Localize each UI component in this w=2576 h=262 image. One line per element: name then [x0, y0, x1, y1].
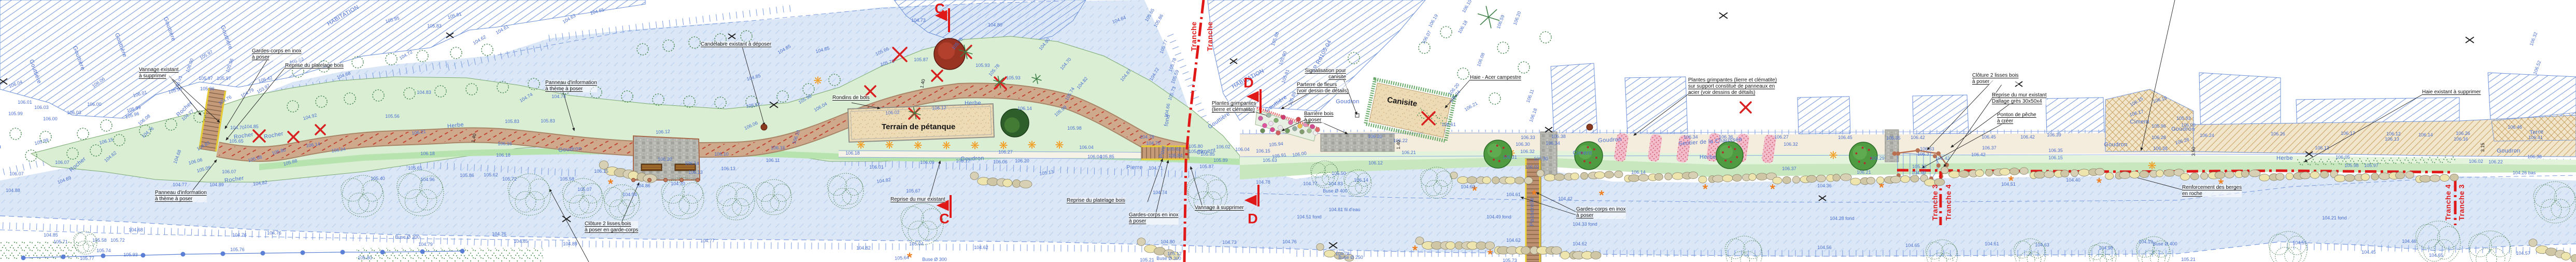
rock — [1344, 254, 1354, 261]
flower — [1274, 118, 1279, 123]
rock — [1170, 252, 1179, 260]
rock — [1910, 175, 1919, 183]
rock — [1773, 177, 1782, 184]
rock — [1551, 246, 1562, 254]
rock — [2034, 171, 2045, 178]
rock — [1817, 175, 1826, 182]
flower — [1315, 128, 1320, 132]
rock — [1941, 167, 1948, 174]
site-plan: 106.04106.01106.03106.00106.03106.00106.… — [0, 0, 2576, 262]
rock — [2061, 170, 2069, 177]
bench — [675, 164, 696, 171]
parcel-hatch — [1913, 95, 1969, 134]
round-tree — [1488, 144, 1502, 158]
rock — [2078, 169, 2090, 176]
rock — [1416, 237, 1424, 245]
survey-dot — [21, 256, 26, 260]
rock — [2440, 174, 2449, 182]
shrub-tree — [1419, 42, 1430, 53]
petanque-court — [848, 104, 994, 142]
flower — [1310, 125, 1315, 129]
starfish-symbol — [1879, 184, 1881, 185]
rock — [1833, 174, 1840, 182]
round-tree-berry — [1505, 155, 1507, 157]
star-plant — [1480, 17, 1489, 25]
rock — [1877, 177, 1884, 184]
round-tree-berry — [1493, 159, 1495, 161]
round-tree-berry — [1724, 159, 1726, 161]
starfish-symbol — [2008, 177, 2011, 178]
light-symbol — [2151, 164, 2153, 167]
rock — [2430, 175, 2440, 182]
rock — [2379, 173, 2390, 180]
rock — [1317, 243, 1324, 251]
flower — [1267, 113, 1271, 118]
round-tree-berry — [1728, 146, 1730, 148]
rock — [2334, 175, 2346, 182]
shrub-tree — [10, 128, 21, 140]
rock — [970, 172, 979, 180]
round-tree-berry — [1734, 148, 1736, 150]
rock — [2156, 170, 2163, 177]
light-symbol — [1832, 154, 1834, 156]
flower — [1281, 115, 1286, 120]
light-symbol — [1002, 144, 1004, 146]
rock — [1137, 238, 1145, 246]
round-tree — [1578, 145, 1592, 159]
plan-drawing — [0, 0, 2576, 262]
light-symbol — [1058, 144, 1060, 146]
rock — [2020, 168, 2028, 175]
light-symbol — [860, 144, 862, 146]
rock — [1446, 242, 1455, 250]
walkway — [839, 154, 1188, 156]
flower — [1276, 131, 1281, 135]
candelabra-dot — [761, 124, 767, 130]
light-symbol — [1031, 144, 1033, 146]
rock — [1986, 169, 1993, 176]
rock — [2119, 172, 2131, 179]
survey-dot — [261, 251, 265, 256]
parcel-hatch — [1625, 77, 1688, 134]
terrace-post — [632, 178, 635, 182]
flower — [1306, 120, 1311, 125]
rock — [1020, 181, 1032, 188]
round-tree-berry — [1587, 146, 1589, 148]
rock — [1524, 177, 1533, 184]
green-strip — [357, 248, 543, 261]
shrub-tree — [1540, 32, 1551, 43]
round-tree-berry — [1498, 160, 1501, 162]
rock — [1712, 175, 1724, 183]
round-tree-berry — [1496, 145, 1498, 147]
rock — [1866, 177, 1875, 185]
rock — [1580, 172, 1588, 180]
rock — [1934, 178, 1945, 186]
star-plant — [1486, 6, 1489, 17]
rock — [2320, 171, 2329, 178]
terrace-post — [696, 178, 700, 182]
terrace-post — [664, 178, 668, 182]
survey-dot — [141, 253, 146, 258]
rock — [1806, 175, 1817, 183]
pont-bridge — [1141, 146, 1189, 160]
rock — [2361, 174, 2369, 181]
rock — [1505, 177, 1516, 184]
round-tree-berry — [1868, 149, 1870, 151]
rock — [1570, 173, 1579, 180]
round-tree-berry — [1736, 156, 1738, 158]
shrub-tree — [1440, 26, 1452, 38]
starfish-symbol — [907, 254, 910, 255]
rock — [1324, 250, 1336, 257]
rock — [1924, 179, 1936, 186]
flower — [1289, 120, 1293, 125]
rock — [1959, 171, 1969, 178]
rock — [2129, 171, 2140, 178]
rock — [1334, 252, 1344, 259]
rock — [2000, 168, 2010, 175]
rock — [2561, 252, 2570, 260]
parcel-hatch — [2046, 98, 2104, 134]
shrub-tree — [77, 128, 89, 140]
rock — [1492, 177, 1499, 184]
rock — [1654, 173, 1663, 181]
rock — [2420, 175, 2431, 183]
round-tree-berry — [1870, 157, 1872, 159]
shrub-tree — [1497, 42, 1509, 53]
dark-bush — [1004, 117, 1020, 133]
terrace-post — [648, 178, 652, 182]
ciment-crosshatch — [2105, 89, 2193, 151]
terrace-post — [680, 178, 684, 182]
rock — [2225, 171, 2234, 178]
star-plant — [1489, 17, 1499, 21]
rock — [1003, 179, 1012, 187]
rock — [2276, 173, 2284, 181]
survey-dot — [101, 254, 106, 258]
rock — [2044, 171, 2055, 178]
flower — [1300, 130, 1305, 134]
rock — [2300, 172, 2311, 179]
stone-abutment — [1540, 132, 1557, 175]
light-symbol — [945, 144, 947, 146]
flower — [1278, 126, 1283, 130]
rock — [2215, 172, 2225, 179]
round-tree — [1853, 146, 1867, 160]
rock — [1792, 176, 1800, 184]
rock — [1891, 176, 1901, 183]
round-tree-berry — [1503, 147, 1505, 149]
rock — [1689, 172, 1698, 179]
rock — [1561, 251, 1570, 259]
survey-dot — [221, 252, 225, 256]
round-tree-berry — [1490, 150, 1492, 153]
rock — [2249, 170, 2260, 177]
rock — [1665, 173, 1672, 180]
flower — [1258, 116, 1263, 121]
rock — [1629, 175, 1640, 182]
flower — [1298, 124, 1303, 129]
round-tree-berry — [1862, 147, 1864, 149]
survey-dot — [341, 250, 345, 255]
starfish-symbol — [608, 181, 611, 182]
light-symbol — [917, 144, 919, 146]
shrub-tree — [1518, 62, 1530, 73]
round-tree-berry — [1593, 148, 1595, 150]
round-tree-berry — [1595, 157, 1597, 159]
shrub-tree — [417, 50, 428, 62]
rock — [1782, 176, 1791, 184]
rock — [1476, 242, 1487, 250]
survey-dot — [301, 251, 305, 255]
starfish-symbol — [1703, 186, 1705, 187]
rock — [1850, 178, 1861, 185]
flower — [1269, 121, 1273, 126]
round-tree-berry — [1864, 162, 1866, 164]
starfish-symbol — [1472, 187, 1475, 188]
flower — [1296, 117, 1301, 122]
rock — [1450, 172, 1457, 179]
starfish-symbol — [1599, 192, 1602, 193]
round-tree-berry — [1730, 161, 1732, 163]
bench — [641, 164, 662, 171]
rock — [2071, 170, 2078, 177]
survey-dot — [181, 252, 186, 257]
parcel-hatch — [2488, 73, 2576, 120]
light-symbol — [817, 79, 819, 81]
rock — [1749, 174, 1756, 181]
rock — [1732, 174, 1742, 182]
shrub-tree — [450, 47, 462, 59]
starfish-symbol — [2218, 181, 2221, 182]
rock — [2371, 173, 2379, 181]
flower — [1261, 129, 1265, 133]
round-tree-berry — [1858, 161, 1860, 163]
rock — [2164, 170, 2175, 177]
rock — [2181, 173, 2190, 181]
survey-dot — [420, 250, 425, 254]
rock — [2095, 168, 2104, 175]
starfish-symbol — [1488, 251, 1490, 252]
star-plant — [1489, 17, 1491, 28]
rock — [1901, 175, 1910, 183]
round-tree-berry — [1722, 151, 1724, 154]
shrub-tree — [386, 53, 397, 65]
round-tree — [1720, 145, 1733, 159]
rock — [2450, 174, 2458, 181]
rock — [1605, 171, 1614, 178]
rock — [2201, 172, 2208, 180]
starfish-symbol — [2097, 180, 2099, 181]
stone-wall — [1321, 134, 1394, 151]
rock — [2140, 171, 2149, 178]
rock — [1485, 242, 1494, 250]
rock — [1949, 171, 1960, 178]
shrub-tree — [1457, 68, 1469, 79]
rock — [1467, 176, 1477, 184]
candelabra-dot — [1587, 124, 1593, 130]
stone-block — [1885, 130, 1899, 162]
rock — [599, 161, 608, 170]
round-tree-berry — [1856, 153, 1858, 155]
survey-dot — [380, 250, 385, 255]
starfish-symbol — [1412, 247, 1415, 248]
round-tree-berry — [1581, 152, 1583, 154]
rock — [1699, 176, 1707, 183]
rock — [1594, 172, 1605, 179]
shrub-tree — [1489, 93, 1501, 104]
survey-dot — [460, 249, 465, 254]
rock — [1545, 174, 1556, 181]
flower — [1270, 128, 1275, 132]
shrub-tree — [482, 44, 493, 56]
rock — [1615, 171, 1623, 178]
star-plant — [1478, 13, 1489, 17]
rock — [1722, 175, 1733, 182]
rock — [2009, 168, 2019, 175]
rock — [1554, 174, 1565, 181]
rock — [2344, 174, 2355, 182]
round-tree-berry — [1589, 162, 1591, 164]
rock — [2286, 173, 2293, 180]
canisite-sign — [1355, 114, 1359, 117]
rock — [1591, 252, 1601, 259]
rock — [2105, 172, 2114, 180]
rock — [2190, 173, 2199, 180]
starfish-symbol — [1532, 191, 1534, 192]
shrub-tree — [40, 131, 51, 143]
rock — [2405, 171, 2414, 178]
red-leaf-tree — [938, 43, 955, 60]
shrub-tree — [101, 120, 112, 131]
rock — [1672, 173, 1683, 180]
rock — [2259, 174, 2270, 182]
flower — [1285, 129, 1290, 133]
rock — [1515, 177, 1524, 184]
rock — [1975, 170, 1984, 177]
parcel-hatch — [1797, 96, 1850, 134]
flower — [1263, 123, 1267, 128]
rock — [2529, 239, 2537, 247]
survey-dot — [61, 255, 66, 259]
rock — [2396, 172, 2405, 179]
light-symbol — [974, 144, 976, 146]
leader-line — [1343, 79, 1357, 115]
rock — [1756, 173, 1767, 181]
rock — [1638, 174, 1649, 182]
star-plant — [1489, 9, 1497, 17]
rock — [1841, 174, 1852, 181]
rock — [1482, 177, 1491, 184]
light-symbol — [888, 144, 890, 146]
rock — [1521, 246, 1531, 254]
flower — [1307, 129, 1312, 133]
rock — [2310, 172, 2319, 179]
flower — [1293, 127, 1297, 131]
rock — [2241, 170, 2248, 177]
rock — [1537, 170, 1544, 177]
round-tree-berry — [1583, 160, 1586, 162]
starfish-symbol — [1770, 186, 1773, 187]
